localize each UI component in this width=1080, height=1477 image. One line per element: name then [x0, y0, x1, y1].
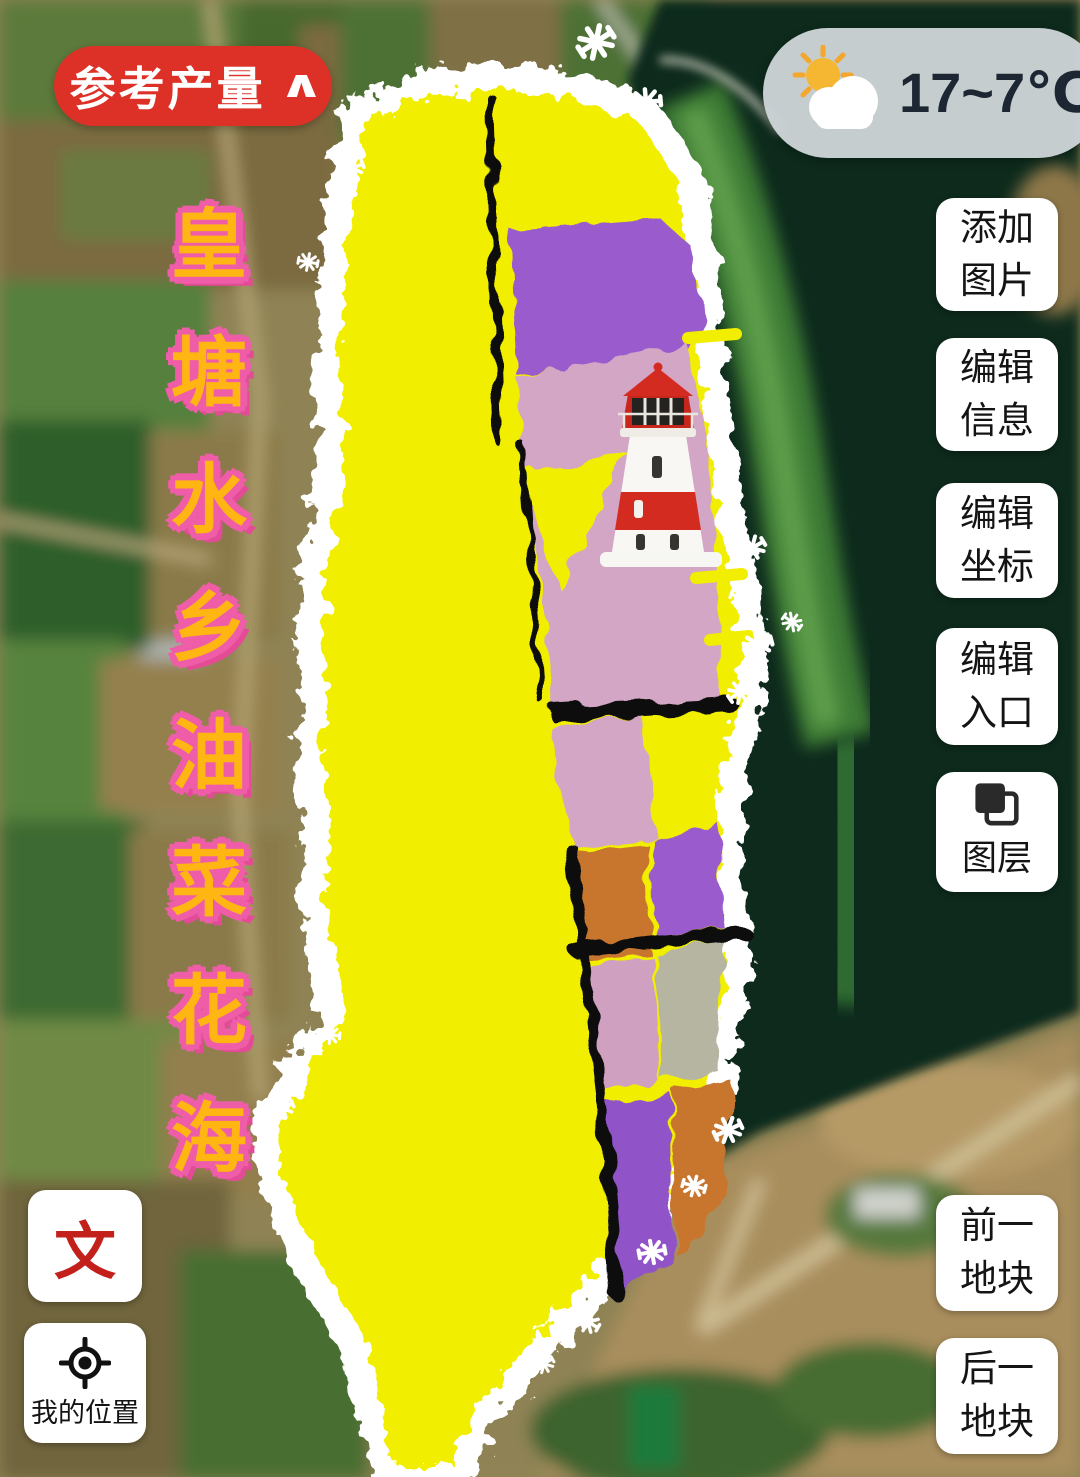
layers-label: 图层: [962, 834, 1032, 884]
text-annotation-button[interactable]: 文: [28, 1190, 142, 1302]
edit-info-button[interactable]: 编辑信息: [936, 338, 1058, 451]
next-plot-button[interactable]: 后一地块: [936, 1338, 1058, 1454]
weather-widget[interactable]: 17~7℃: [763, 28, 1080, 158]
reference-yield-label: 参考产量: [70, 53, 266, 119]
next-plot-label: 后一地块: [959, 1343, 1035, 1448]
layers-icon: [972, 780, 1022, 830]
sun-behind-cloud-icon: [785, 45, 889, 141]
text-annotation-label: 文: [54, 1201, 116, 1291]
add-photo-button[interactable]: 添加图片: [936, 198, 1058, 311]
previous-plot-label: 前一地块: [959, 1200, 1035, 1305]
reference-yield-button[interactable]: 参考产量 ∧: [54, 46, 332, 126]
edit-coordinates-label: 编辑坐标: [959, 488, 1035, 593]
satellite-map[interactable]: [0, 0, 1080, 1477]
layers-button[interactable]: 图层: [936, 772, 1058, 892]
edit-entrance-label: 编辑入口: [959, 634, 1035, 739]
edit-entrance-button[interactable]: 编辑入口: [936, 628, 1058, 745]
edit-coordinates-button[interactable]: 编辑坐标: [936, 483, 1058, 598]
temperature-range: 17~7℃: [899, 60, 1080, 126]
map-title-vertical: 皇塘水乡油菜花海: [166, 182, 252, 1203]
target-icon: [59, 1337, 111, 1389]
my-location-label: 我的位置: [31, 1391, 139, 1430]
my-location-button[interactable]: 我的位置: [24, 1323, 146, 1443]
chevron-up-icon: ∧: [278, 62, 324, 107]
add-photo-label: 添加图片: [959, 202, 1035, 307]
edit-info-label: 编辑信息: [959, 342, 1035, 447]
previous-plot-button[interactable]: 前一地块: [936, 1195, 1058, 1311]
